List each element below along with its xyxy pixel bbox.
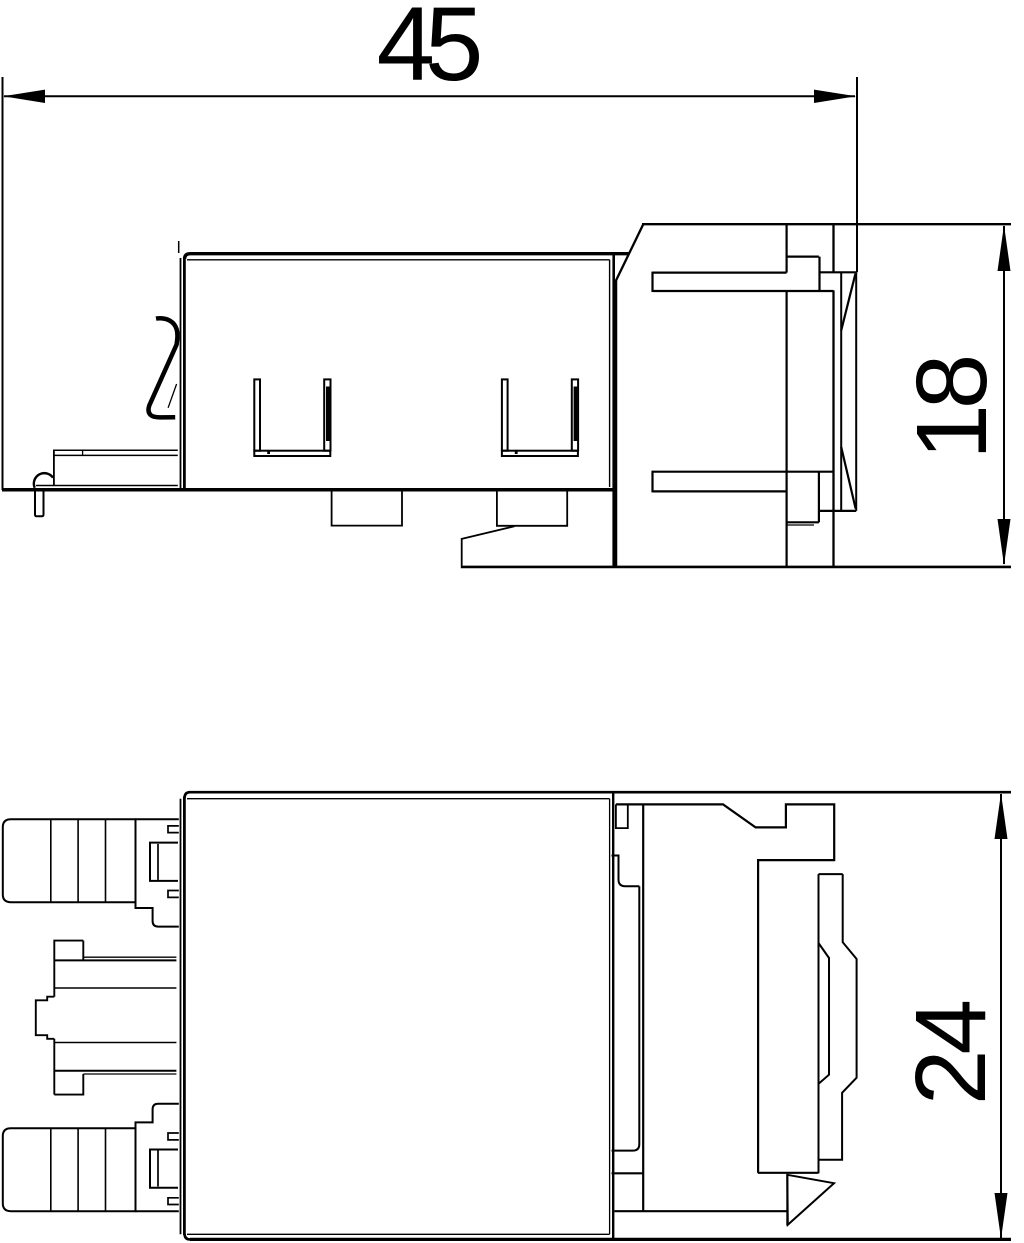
svg-text:18: 18 bbox=[896, 357, 1008, 460]
svg-text:24: 24 bbox=[895, 1002, 1007, 1106]
svg-text:45: 45 bbox=[377, 0, 479, 103]
